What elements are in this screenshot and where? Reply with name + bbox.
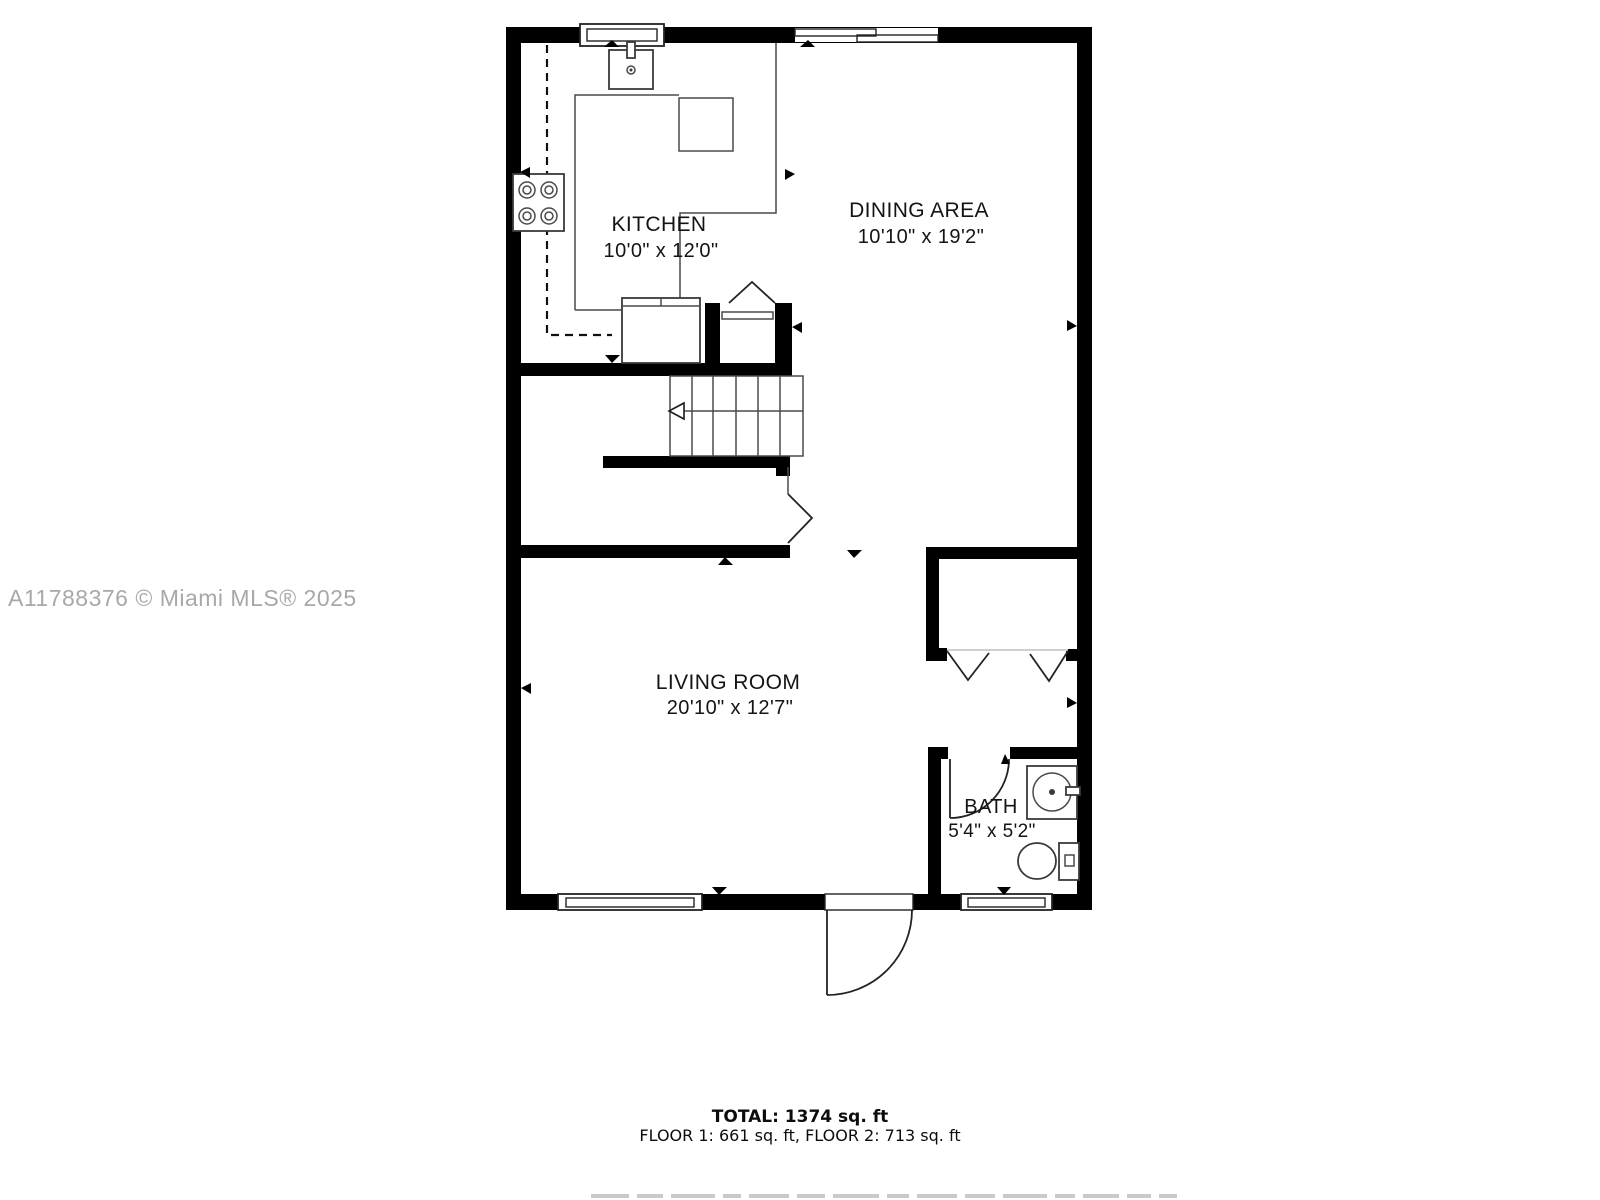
kitchen-bottom-wall bbox=[506, 363, 792, 376]
direction-arrow-down-icon bbox=[712, 887, 727, 895]
living-window bbox=[558, 894, 702, 910]
left-wall bbox=[506, 27, 521, 910]
cropped-text-artifact bbox=[591, 1194, 1177, 1198]
stairs-bottom-wall bbox=[603, 456, 790, 468]
hall-door bbox=[788, 467, 812, 543]
total-area-text: TOTAL: 1374 sq. ft bbox=[712, 1107, 888, 1127]
kitchen-window bbox=[580, 24, 664, 46]
kitchen-label: KITCHEN bbox=[612, 213, 707, 237]
dining-label: DINING AREA bbox=[849, 199, 989, 223]
bath-dimensions: 5'4" x 5'2" bbox=[948, 821, 1035, 843]
mls-watermark: A11788376 © Miami MLS® 2025 bbox=[8, 585, 357, 612]
closet-foot bbox=[926, 648, 947, 661]
direction-arrow-up-icon bbox=[718, 557, 733, 565]
closet-top-wall bbox=[926, 547, 1092, 559]
direction-arrow-down-icon bbox=[605, 355, 620, 363]
living-room-label: LIVING ROOM bbox=[656, 671, 800, 695]
entry-door-swing bbox=[825, 894, 913, 995]
bath-top-wall-right bbox=[1010, 747, 1092, 759]
toilet-icon bbox=[1018, 843, 1079, 880]
floor-plan-page: KITCHEN 10'0" x 12'0" DINING AREA 10'10"… bbox=[0, 0, 1600, 1200]
direction-arrow-left-icon bbox=[521, 683, 531, 694]
sliding-door bbox=[795, 28, 938, 42]
living-room-dimensions: 20'10" x 12'7" bbox=[667, 697, 793, 720]
exterior-walls bbox=[506, 27, 1092, 910]
living-top-wall bbox=[506, 545, 790, 558]
closet-bifold-doors bbox=[947, 650, 1068, 681]
right-wall bbox=[1077, 27, 1092, 910]
kitchen-dimensions: 10'0" x 12'0" bbox=[604, 240, 719, 263]
pantry-bifold-door bbox=[729, 282, 775, 303]
bathroom-sink-icon bbox=[1027, 766, 1080, 819]
dining-dimensions: 10'10" x 19'2" bbox=[858, 226, 984, 249]
pantry-shelf bbox=[722, 312, 773, 319]
bath-left-wall bbox=[928, 747, 941, 895]
kitchen-sink-icon bbox=[609, 42, 653, 89]
direction-arrow-right-icon bbox=[785, 169, 795, 180]
base-cabinet bbox=[622, 298, 700, 363]
stove-icon bbox=[513, 174, 564, 231]
staircase bbox=[669, 376, 803, 456]
direction-arrow-right-icon bbox=[1067, 697, 1077, 708]
pantry-right-pillar bbox=[775, 303, 792, 365]
closet-left-wall bbox=[926, 547, 939, 661]
direction-arrow-left-icon bbox=[792, 322, 802, 333]
direction-arrow-down-icon bbox=[847, 550, 862, 558]
pantry-left-pillar bbox=[705, 303, 720, 365]
direction-arrow-right-icon bbox=[1067, 320, 1077, 331]
bath-label: BATH bbox=[964, 796, 1017, 819]
stair-direction-arrow-icon bbox=[669, 403, 684, 419]
floor-areas-text: FLOOR 1: 661 sq. ft, FLOOR 2: 713 sq. ft bbox=[639, 1126, 960, 1145]
kitchen-counter bbox=[575, 43, 776, 310]
bath-window bbox=[961, 894, 1052, 910]
